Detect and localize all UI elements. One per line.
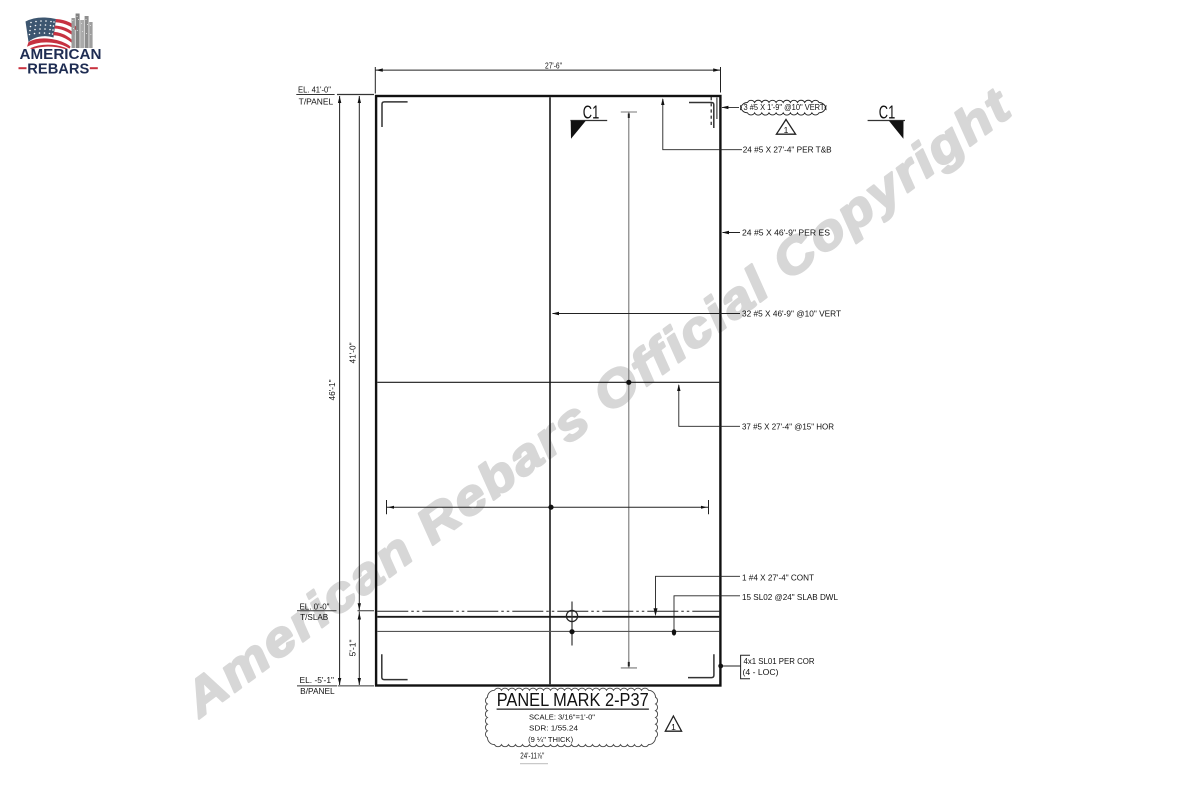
- svg-text:SCALE: 3/16"=1'-0": SCALE: 3/16"=1'-0": [529, 713, 595, 722]
- svg-text:41'-0": 41'-0": [349, 342, 358, 363]
- svg-text:3 #5 X 1'-9" @10" VERT: 3 #5 X 1'-9" @10" VERT: [744, 102, 825, 112]
- svg-text:REBARS: REBARS: [27, 62, 89, 78]
- svg-text:T/PANEL: T/PANEL: [299, 97, 334, 106]
- svg-text:37 #5 X 27'-4" @15" HOR: 37 #5 X 27'-4" @15" HOR: [742, 421, 834, 431]
- svg-text:46'-1": 46'-1": [328, 379, 337, 400]
- svg-text:1: 1: [671, 722, 676, 732]
- svg-text:(4 - LOC): (4 - LOC): [743, 667, 779, 677]
- svg-text:C1: C1: [583, 102, 600, 122]
- svg-text:T/SLAB: T/SLAB: [300, 613, 328, 622]
- svg-text:32 #5 X 46'-9" @10" VERT: 32 #5 X 46'-9" @10" VERT: [742, 308, 841, 318]
- svg-text:4x1 SL01 PER COR: 4x1 SL01 PER COR: [744, 656, 815, 666]
- svg-text:15 SL02 @24" SLAB DWL: 15 SL02 @24" SLAB DWL: [742, 592, 838, 602]
- svg-text:1 #4 X 27'-4" CONT: 1 #4 X 27'-4" CONT: [742, 572, 814, 582]
- svg-text:SDR: 1/55.24: SDR: 1/55.24: [529, 724, 578, 733]
- svg-text:24'-11⅞": 24'-11⅞": [520, 750, 544, 760]
- svg-text:27'-6": 27'-6": [545, 60, 562, 70]
- svg-text:EL. -5'-1": EL. -5'-1": [300, 676, 335, 685]
- svg-text:EL. 0'-0": EL. 0'-0": [300, 602, 330, 611]
- svg-text:C1: C1: [879, 102, 896, 122]
- svg-text:5'-1": 5'-1": [349, 639, 358, 656]
- svg-text:24 #5 X 27'-4" PER T&B: 24 #5 X 27'-4" PER T&B: [743, 144, 832, 154]
- svg-text:1: 1: [784, 125, 789, 135]
- svg-text:B/PANEL: B/PANEL: [300, 687, 335, 696]
- svg-text:(9 ¼" THICK): (9 ¼" THICK): [528, 735, 573, 744]
- svg-text:EL. 41'-0": EL. 41'-0": [298, 86, 331, 95]
- svg-text:24 #5 X 46'-9" PER ES: 24 #5 X 46'-9" PER ES: [742, 227, 830, 237]
- svg-text:PANEL MARK 2-P37: PANEL MARK 2-P37: [497, 690, 649, 710]
